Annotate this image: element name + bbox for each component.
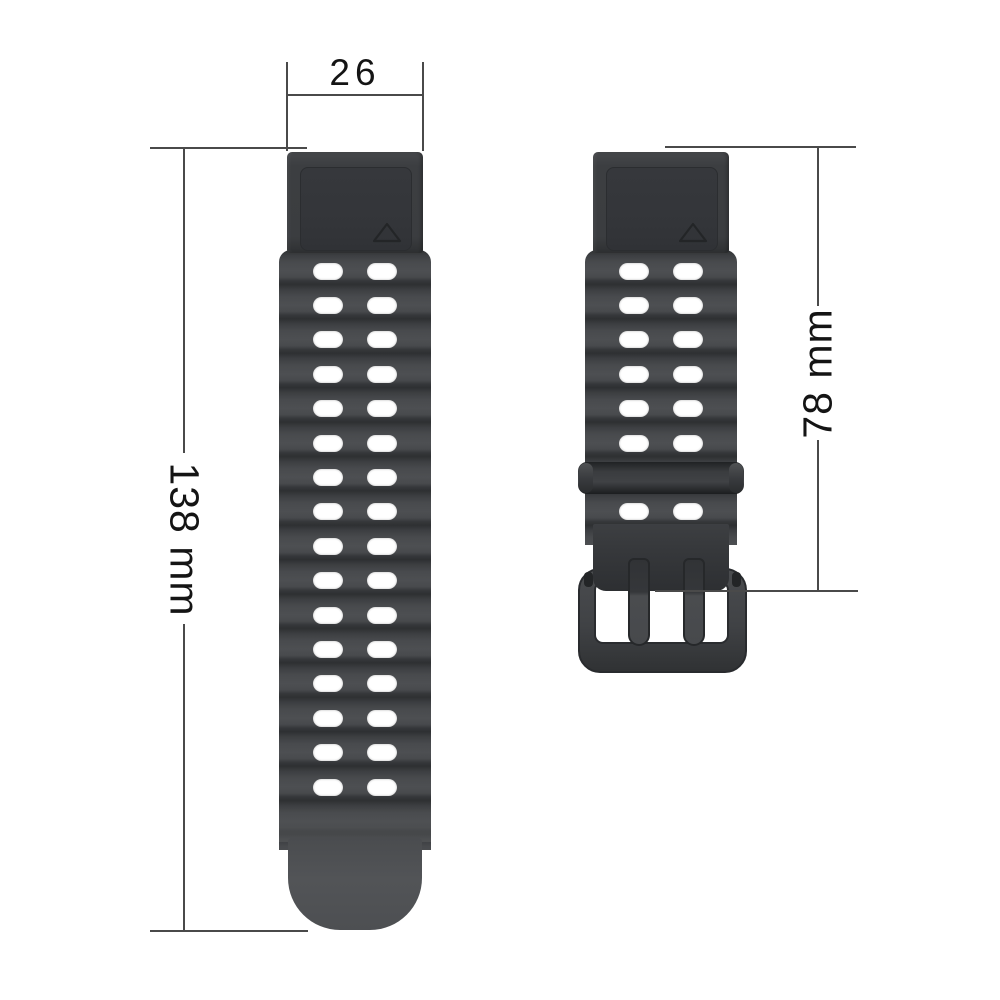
left-lug-adapter <box>287 152 423 253</box>
strap-hole <box>673 435 703 452</box>
strap-hole <box>313 710 343 727</box>
strap-hole <box>367 744 397 761</box>
keeper-cap <box>729 463 743 493</box>
right-strap-body <box>585 250 737 545</box>
left-lug-panel <box>300 167 412 251</box>
strap-hole <box>619 331 649 348</box>
strap-hole <box>313 641 343 658</box>
buckle-hinge-pin <box>584 572 593 587</box>
product-diagram: 26 138 mm 78 mm <box>0 0 1000 1000</box>
strap-hole <box>367 675 397 692</box>
strap-hole <box>673 331 703 348</box>
keeper-loop <box>578 462 744 494</box>
strap-hole <box>367 572 397 589</box>
right-lug-panel <box>606 167 718 251</box>
strap-hole <box>673 503 703 520</box>
strap-hole <box>619 435 649 452</box>
right-lug-adapter <box>593 152 729 253</box>
strap-hole <box>673 297 703 314</box>
strap-hole <box>313 675 343 692</box>
right-strap-end <box>593 524 729 591</box>
length-dimension-line-upper <box>183 147 185 453</box>
left-strap-tip-fade <box>279 808 431 842</box>
strap-hole <box>619 263 649 280</box>
length-dimension-line-lower <box>183 624 185 932</box>
strap-hole <box>367 263 397 280</box>
strap-hole <box>619 400 649 417</box>
buckle-prong <box>683 558 705 646</box>
strap-hole <box>367 710 397 727</box>
length-dimension-label: 138 mm <box>161 420 208 660</box>
strap-hole <box>313 744 343 761</box>
strap-hole <box>313 435 343 452</box>
strap-hole <box>367 297 397 314</box>
strap-hole <box>313 607 343 624</box>
width-dimension-label: 26 <box>277 52 433 94</box>
strap-hole <box>673 400 703 417</box>
strap-hole <box>367 538 397 555</box>
strap-hole <box>673 263 703 280</box>
strap-hole <box>313 297 343 314</box>
strap-hole <box>367 469 397 486</box>
buckle-dimension-label: 78 mm <box>795 254 842 494</box>
width-dimension-line <box>287 94 423 96</box>
strap-hole <box>619 503 649 520</box>
strap-hole <box>367 607 397 624</box>
triangle-icon <box>678 220 708 244</box>
strap-hole <box>313 400 343 417</box>
left-strap-body <box>279 250 431 850</box>
strap-hole <box>313 538 343 555</box>
triangle-icon <box>372 220 402 244</box>
buckle-hinge-pin <box>732 572 741 587</box>
strap-hole <box>367 331 397 348</box>
keeper-cap <box>579 463 593 493</box>
strap-hole <box>619 297 649 314</box>
buckle-prong <box>628 558 650 646</box>
buckle-extension-line-top <box>665 146 856 148</box>
buckle-extension-line-bottom <box>655 590 858 592</box>
strap-hole <box>313 331 343 348</box>
strap-hole <box>313 263 343 280</box>
strap-hole <box>313 366 343 383</box>
left-strap-tip <box>288 838 422 930</box>
strap-hole <box>313 503 343 520</box>
strap-hole <box>619 366 649 383</box>
strap-hole <box>367 779 397 796</box>
strap-hole <box>313 572 343 589</box>
strap-hole <box>313 779 343 796</box>
strap-hole <box>367 435 397 452</box>
strap-hole <box>367 400 397 417</box>
strap-hole <box>673 366 703 383</box>
strap-hole <box>367 641 397 658</box>
strap-hole <box>367 503 397 520</box>
length-extension-line-bottom <box>150 930 308 932</box>
length-extension-line-top <box>150 147 307 149</box>
strap-hole <box>313 469 343 486</box>
strap-hole <box>367 366 397 383</box>
